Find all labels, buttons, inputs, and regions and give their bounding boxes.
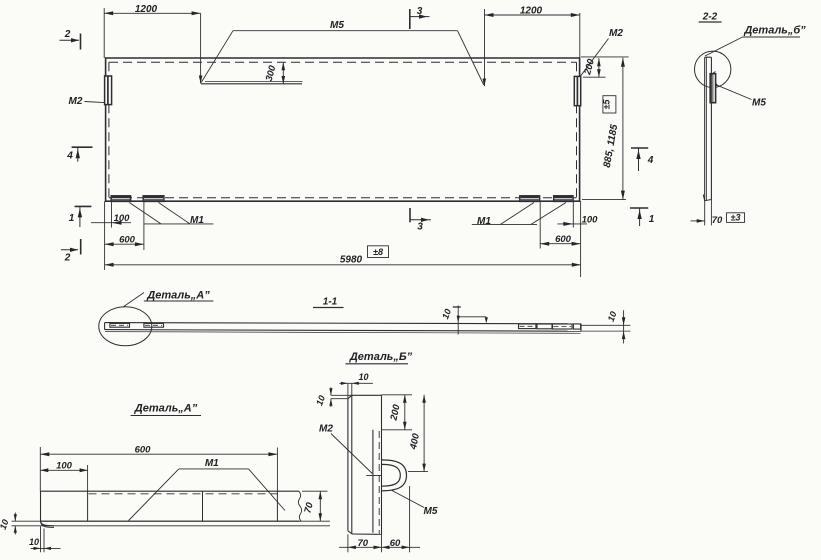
svg-text:70: 70 xyxy=(358,538,369,549)
svg-text:М5: М5 xyxy=(752,98,766,109)
svg-text:±5: ±5 xyxy=(602,99,612,110)
svg-text:Деталь„А”: Деталь„А” xyxy=(134,403,198,415)
svg-text:100: 100 xyxy=(56,461,73,472)
svg-text:М2: М2 xyxy=(609,28,623,39)
svg-text:10: 10 xyxy=(358,372,368,382)
svg-text:1200: 1200 xyxy=(135,4,158,15)
svg-text:2: 2 xyxy=(64,253,71,264)
svg-text:100: 100 xyxy=(114,213,131,224)
svg-text:Деталь„Б”: Деталь„Б” xyxy=(349,351,413,363)
svg-text:М1: М1 xyxy=(205,458,219,469)
svg-text:600: 600 xyxy=(119,234,136,245)
svg-text:2: 2 xyxy=(64,29,71,40)
svg-text:М1: М1 xyxy=(190,215,204,226)
svg-text:3: 3 xyxy=(417,6,423,17)
svg-text:Деталь„А”: Деталь„А” xyxy=(146,290,210,302)
svg-text:1-1: 1-1 xyxy=(323,297,338,308)
svg-text:4: 4 xyxy=(647,155,654,166)
svg-text:5980: 5980 xyxy=(340,255,363,266)
svg-text:600: 600 xyxy=(555,234,572,245)
svg-text:М5: М5 xyxy=(424,506,438,517)
svg-text:60: 60 xyxy=(390,538,401,549)
svg-text:М2: М2 xyxy=(69,96,83,107)
svg-text:2-2: 2-2 xyxy=(702,12,718,23)
svg-text:100: 100 xyxy=(582,214,599,225)
svg-text:1: 1 xyxy=(649,214,655,225)
svg-text:70: 70 xyxy=(712,215,723,226)
svg-text:10: 10 xyxy=(29,537,39,547)
svg-text:М5: М5 xyxy=(330,20,344,31)
svg-text:М1: М1 xyxy=(477,216,491,227)
svg-text:600: 600 xyxy=(135,445,152,456)
svg-text:Деталь„б”: Деталь„б” xyxy=(743,25,806,37)
svg-text:±3: ±3 xyxy=(731,213,741,223)
svg-text:4: 4 xyxy=(66,151,73,162)
svg-text:3: 3 xyxy=(417,222,423,233)
svg-text:±8: ±8 xyxy=(373,247,383,257)
svg-text:М2: М2 xyxy=(319,424,333,435)
svg-text:1: 1 xyxy=(69,213,75,224)
svg-text:1200: 1200 xyxy=(520,5,543,16)
